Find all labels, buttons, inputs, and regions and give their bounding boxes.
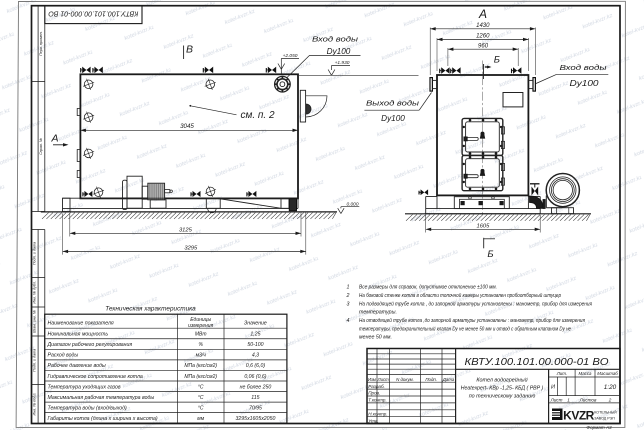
svg-text:Габариты котла (длина х ширина: Габариты котла (длина х ширина х высота) [48, 416, 158, 422]
svg-text:МПа (кгс/см2): МПа (кгс/см2) [184, 363, 217, 369]
svg-text:KVZR: KVZR [563, 409, 595, 423]
svg-text:Подп.: Подп. [425, 377, 437, 382]
svg-text:Dy100: Dy100 [327, 47, 351, 56]
svg-text:Номинальная мощность: Номинальная мощность [48, 332, 109, 338]
svg-text:0,6 (6,0): 0,6 (6,0) [246, 363, 266, 369]
svg-text:Подп. и дата: Подп. и дата [32, 349, 36, 372]
svg-text:Перв. примен.: Перв. примен. [39, 31, 43, 56]
svg-text:Разраб.: Разраб. [368, 384, 385, 389]
svg-text:1605: 1605 [476, 224, 490, 230]
svg-text:Взам. инв. №: Взам. инв. № [32, 310, 36, 333]
svg-text:Выход воды: Выход воды [366, 99, 420, 108]
svg-text:Рабочее давление воды: Рабочее давление воды [48, 363, 106, 369]
svg-text:Формат А3: Формат А3 [586, 425, 612, 430]
svg-text:Утв.: Утв. [368, 418, 378, 423]
svg-text:3: 3 [347, 301, 350, 307]
svg-text:960: 960 [478, 43, 489, 49]
svg-text:На боковой стенке котла в обла: На боковой стенке котла в области топочн… [359, 292, 561, 299]
svg-text:Изм: Изм [368, 377, 376, 382]
svg-text:КОТЕЛЬНЫЙ: КОТЕЛЬНЫЙ [594, 411, 617, 415]
svg-text:ЗАВОД РЭП: ЗАВОД РЭП [594, 416, 615, 420]
svg-text:На отводящей трубе котла ,до з: На отводящей трубе котла ,до запорной ар… [359, 317, 585, 324]
svg-text:+2.050: +2.050 [283, 53, 298, 59]
svg-text:3295х1605х2050: 3295х1605х2050 [236, 416, 276, 422]
svg-text:КВТУ.100.101.00.000-01 ВО: КВТУ.100.101.00.000-01 ВО [48, 10, 139, 17]
svg-text:4: 4 [347, 318, 350, 324]
svg-text:°С: °С [198, 384, 204, 390]
svg-text:МПа (кгс/см2): МПа (кгс/см2) [184, 374, 217, 380]
svg-text:Справ. №: Справ. № [39, 138, 43, 155]
svg-text:Т.контр.: Т.контр. [368, 398, 387, 403]
svg-text:N докум.: N докум. [396, 377, 414, 382]
svg-text:Лит.: Лит. [556, 371, 567, 376]
svg-text:Dy100: Dy100 [570, 79, 600, 88]
svg-text:Б: Б [487, 249, 493, 260]
svg-text:Heatexpert- КВр -1,25- КБД ( Р: Heatexpert- КВр -1,25- КБД ( РВР ) [461, 386, 544, 392]
svg-text:А: А [50, 132, 58, 144]
svg-text:мм: мм [197, 416, 204, 422]
svg-text:3045: 3045 [180, 123, 194, 130]
svg-text:Инв. № дубл.: Инв. № дубл. [32, 281, 36, 304]
svg-text:50-100: 50-100 [247, 342, 263, 348]
svg-text:Температура воды (вход/выход): Температура воды (вход/выход) [48, 405, 127, 411]
svg-text:Гидравлическое сопротивление к: Гидравлическое сопротивление котла [48, 374, 143, 380]
svg-text:Масса: Масса [579, 371, 593, 376]
svg-text:1:20: 1:20 [604, 384, 617, 391]
svg-text:Dy100: Dy100 [381, 114, 405, 123]
svg-text:115: 115 [251, 395, 259, 401]
svg-text:температуры.: температуры. [359, 310, 397, 316]
svg-text:1430: 1430 [476, 23, 490, 29]
svg-text:А: А [478, 7, 487, 21]
svg-text:°С: °С [198, 405, 204, 411]
svg-text:Техническая характеристика: Техническая характеристика [105, 306, 196, 313]
svg-text:Наименование показателя: Наименование показателя [48, 321, 114, 327]
svg-text:%: % [198, 342, 203, 348]
svg-text:1: 1 [347, 285, 350, 291]
svg-text:3295: 3295 [184, 246, 198, 252]
svg-text:температуры, предохранительный: температуры, предохранительный клапан Dу… [359, 325, 571, 332]
svg-text:И: И [551, 385, 555, 391]
svg-text:0,06 (0,6): 0,06 (0,6) [244, 374, 266, 380]
svg-text:2: 2 [346, 293, 350, 299]
svg-text:МВт: МВт [195, 332, 207, 338]
svg-text:Масштаб: Масштаб [597, 371, 618, 376]
svg-text:Диапазон рабочего регулировани: Диапазон рабочего регулирования [47, 342, 133, 348]
svg-text:не более 250: не более 250 [240, 384, 272, 390]
svg-text:КВТУ.100.101.00.000-01 ВО: КВТУ.100.101.00.000-01 ВО [465, 356, 609, 368]
svg-text:менее 50 мм.: менее 50 мм. [359, 335, 392, 341]
svg-text:Температура уходящих газов: Температура уходящих газов [48, 384, 121, 390]
svg-text:Листов: Листов [579, 397, 597, 402]
svg-text:Расход воды: Расход воды [48, 353, 79, 359]
svg-text:измерения: измерения [188, 323, 213, 329]
svg-text:2: 2 [608, 397, 612, 402]
svg-text:Лист: Лист [377, 377, 389, 382]
svg-text:+1.930: +1.930 [335, 60, 350, 66]
svg-text:Вход воды: Вход воды [560, 63, 608, 72]
svg-text:Котел водогрейный: Котел водогрейный [476, 377, 527, 384]
svg-text:Подп. и дата: Подп. и дата [32, 242, 36, 265]
svg-text:1260: 1260 [476, 34, 490, 40]
svg-text:Все размеры для справок, допус: Все размеры для справок, допустимое откл… [359, 285, 497, 291]
svg-text:м3/ч: м3/ч [196, 353, 207, 359]
svg-text:3125: 3125 [179, 228, 193, 234]
svg-text:см. п. 2: см. п. 2 [240, 110, 274, 121]
svg-text:Дата: Дата [442, 377, 455, 382]
svg-text:по техническому заданию: по техническому заданию [469, 393, 536, 399]
svg-text:70/95: 70/95 [249, 405, 262, 411]
svg-text:Значение: Значение [244, 321, 267, 327]
svg-text:4,3: 4,3 [252, 353, 259, 359]
svg-text:°С: °С [198, 395, 204, 401]
svg-text:1: 1 [567, 397, 570, 402]
svg-text:Лист: Лист [550, 397, 563, 402]
svg-text:Максимальная рабочая температу: Максимальная рабочая температура воды [48, 395, 155, 401]
svg-text:Н.контр.: Н.контр. [368, 411, 387, 416]
svg-text:Вход воды: Вход воды [312, 35, 359, 44]
svg-text:На подводящей трубе котла ,: На подводящей трубе котла , до запорной … [359, 300, 592, 307]
svg-text:Инв. № подл.: Инв. № подл. [32, 393, 36, 416]
svg-text:Пров.: Пров. [368, 391, 380, 396]
svg-text:1,25: 1,25 [250, 332, 260, 338]
svg-text:Б: Б [494, 55, 500, 66]
svg-text:В: В [186, 44, 193, 56]
